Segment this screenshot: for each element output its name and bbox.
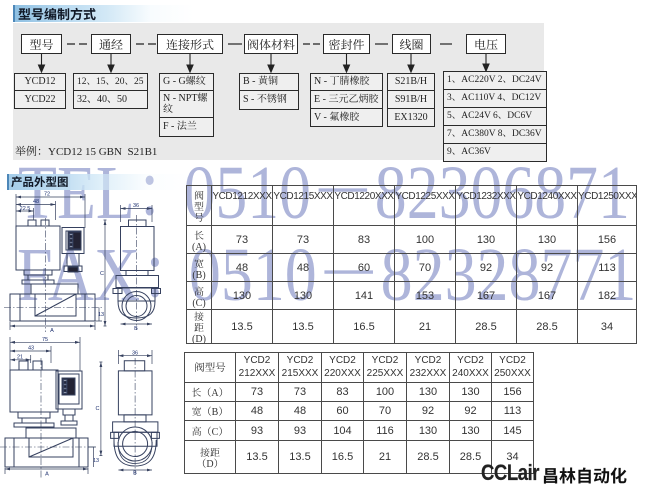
svg-text:48: 48 bbox=[33, 199, 39, 205]
svg-text:75: 75 bbox=[42, 337, 48, 343]
svg-text:22.5: 22.5 bbox=[20, 206, 31, 212]
svg-text:36: 36 bbox=[133, 203, 139, 209]
svg-text:C: C bbox=[96, 406, 100, 412]
svg-text:21: 21 bbox=[17, 354, 23, 360]
svg-text:C: C bbox=[100, 271, 104, 277]
svg-text:13: 13 bbox=[98, 312, 104, 318]
svg-text:B: B bbox=[134, 326, 138, 332]
svg-text:72: 72 bbox=[44, 192, 50, 198]
svg-text:A: A bbox=[50, 328, 54, 334]
svg-text:B: B bbox=[133, 471, 137, 477]
svg-text:A: A bbox=[45, 472, 49, 478]
svg-text:13: 13 bbox=[93, 458, 99, 464]
svg-text:43: 43 bbox=[28, 346, 34, 352]
svg-text:36: 36 bbox=[132, 350, 138, 356]
